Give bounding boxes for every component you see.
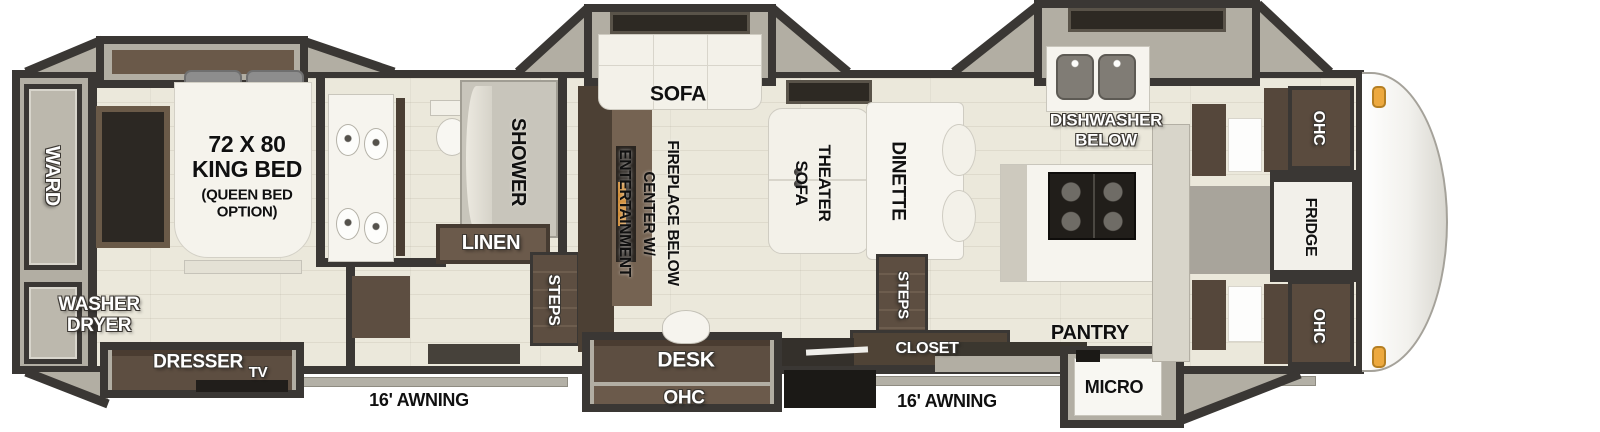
window [1228,286,1262,342]
bedroom-cabinet [352,276,410,338]
dinette-seat [942,190,976,242]
fridge-surround [1190,186,1276,274]
bath-wall-right [558,78,567,268]
wedge [954,4,1040,72]
ohc-bottom-label: OHC [1309,309,1327,344]
kitchen-counter-end [1152,124,1190,362]
window [1228,118,1262,172]
dinette-label: DINETTE [887,141,908,220]
bed-bench [184,260,302,274]
pantry-label: PANTRY [1051,322,1129,344]
closet-label: CLOSET [895,340,958,358]
awning-left-label: 16' AWNING [369,391,469,411]
angled-wall [954,4,1040,72]
shower-glass [466,86,492,232]
lower-counter [428,344,520,364]
entry-steps [784,370,876,408]
living-steps-label: STEPS [894,271,911,319]
clearance-light [1372,86,1386,108]
rv-floorplan: WARD WASHER DRYER 72 X 80 KING BED (QUEE… [0,0,1600,432]
angled-wall [772,8,848,72]
wedge [772,8,848,72]
kitchen-window [1068,8,1226,32]
ward-label: WARD [41,146,63,206]
awning-right-label: 16' AWNING [897,392,997,412]
lower-cabinet [1192,280,1226,350]
front-cap [1362,72,1448,372]
linen-label: LINEN [462,232,521,254]
queen-bed-option-label: (QUEEN BED OPTION) [201,188,292,221]
kitchen-sink [1098,54,1136,100]
cooktop [1048,172,1136,240]
shower-label: SHOWER [507,118,529,206]
sink [364,212,388,244]
tv-label: TV [249,365,268,382]
wedge [306,42,394,72]
entertainment-center-label: ENTERTAINMENT CENTER W/ FIREPLACE BELOW [612,140,684,285]
sink [336,124,360,156]
bath-wall-left [316,78,325,262]
angled-wall [518,8,588,72]
theater-window [786,80,872,104]
micro-label: MICRO [1085,378,1144,398]
dishwasher-label: DISHWASHER BELOW [1050,111,1162,152]
bath-steps-label: STEPS [544,275,562,326]
entertainment-center [578,86,614,352]
wedge [26,40,102,72]
dinette-seat [942,124,976,176]
ohc-top-label: OHC [1309,111,1327,146]
sofa-window [610,12,750,34]
angled-wall [26,40,102,72]
theater-sofa-label: THEATER SOFA [789,145,835,222]
wedge [1258,4,1330,72]
kitchen-sink [1056,54,1094,100]
sink [336,208,360,240]
tv [196,380,288,392]
vanity-divider [396,98,405,256]
upper-cabinet [1264,88,1290,172]
king-bed-label: 72 X 80 KING BED [192,132,302,182]
angled-wall [306,42,394,72]
wedge [518,8,588,72]
desk-chair [662,310,710,344]
lower-cabinet [1264,284,1290,364]
desk-ohc-label: OHC [663,389,704,410]
clearance-light [1372,346,1386,368]
fridge-label: FRIDGE [1301,198,1319,257]
small-appliance [1076,350,1100,362]
sink [364,128,388,160]
angled-wall [1258,4,1330,72]
upper-cabinet [1192,104,1226,176]
sofa-label: SOFA [650,82,706,105]
desk-label: DESK [657,348,714,371]
bedroom-window [96,106,170,248]
washer-dryer-label: WASHER DRYER [58,295,140,337]
dresser-label: DRESSER [153,353,243,374]
